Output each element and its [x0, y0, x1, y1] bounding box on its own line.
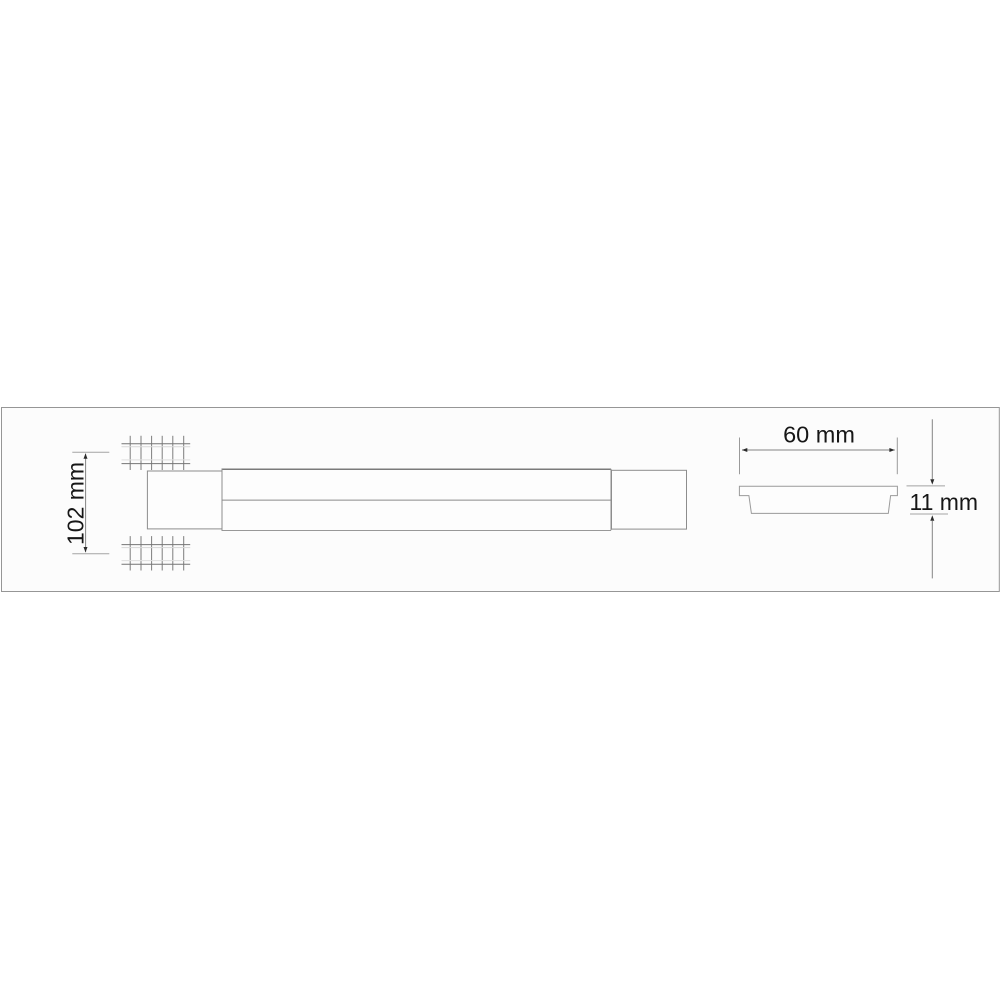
svg-text:102 mm: 102 mm	[63, 462, 89, 545]
svg-text:11 mm: 11 mm	[910, 489, 979, 515]
svg-text:60 mm: 60 mm	[783, 421, 855, 447]
